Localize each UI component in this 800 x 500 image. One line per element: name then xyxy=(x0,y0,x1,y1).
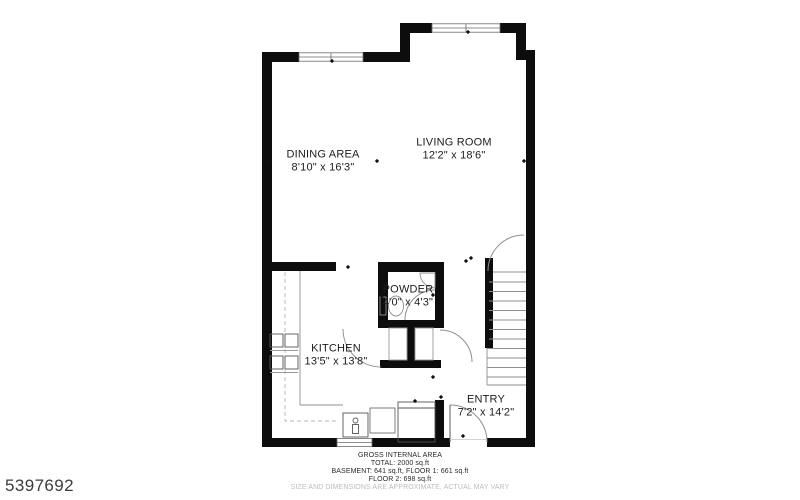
door-arc-closet-entry xyxy=(440,330,472,362)
wall-left xyxy=(262,52,272,447)
stove-icon xyxy=(270,334,298,373)
fridge-icon xyxy=(398,402,435,442)
room-dims: 7'2" x 14'2" xyxy=(458,406,515,419)
wall-right-lower xyxy=(526,52,535,447)
room-label-entry: ENTRY 7'2" x 14'2" xyxy=(458,394,515,419)
walls-layer xyxy=(262,23,535,447)
wall-closet-bottom-right xyxy=(415,360,441,368)
wall-top-left-a xyxy=(262,52,299,62)
dimension-marker xyxy=(439,395,443,399)
dimension-marker xyxy=(413,399,417,403)
wall-powder-right xyxy=(435,262,444,328)
wall-stairs-left xyxy=(485,258,493,348)
dimension-marker xyxy=(469,256,473,260)
room-dims: 4'0" x 4'3" xyxy=(383,296,434,309)
area-summary-disclaimer: SIZE AND DIMENSIONS ARE APPROXIMATE, ACT… xyxy=(230,484,570,492)
wall-bottom-c xyxy=(487,438,535,447)
area-summary: GROSS INTERNAL AREA TOTAL: 2000 sq.ft BA… xyxy=(230,452,570,492)
dimension-marker xyxy=(522,159,526,163)
window-bottom-kitchen xyxy=(337,439,372,447)
room-label-powder: POWDER 4'0" x 4'3" xyxy=(383,284,434,309)
wall-closet-divider xyxy=(407,320,415,368)
wall-entry-left xyxy=(435,400,444,443)
dimension-marker xyxy=(461,434,465,438)
room-name: ENTRY xyxy=(467,394,505,406)
closet-left xyxy=(389,328,407,360)
dimension-marker xyxy=(375,159,379,163)
closet-right xyxy=(415,328,433,360)
door-arc-stairs xyxy=(488,235,524,271)
wall-closet-bottom-left xyxy=(380,360,408,368)
room-name: KITCHEN xyxy=(311,343,361,355)
room-name: DINING AREA xyxy=(286,149,359,161)
area-summary-title: GROSS INTERNAL AREA xyxy=(230,452,570,460)
windows-layer xyxy=(299,24,500,447)
dimension-marker xyxy=(464,259,468,263)
wall-kitchen-divider xyxy=(262,262,336,271)
room-dims: 12'2" x 18'6" xyxy=(416,149,492,162)
floorplan-drawing xyxy=(0,0,800,500)
sink-icon xyxy=(343,413,368,437)
room-label-dining: DINING AREA 8'10" x 16'3" xyxy=(286,149,359,174)
dimension-marker xyxy=(431,375,435,379)
room-label-living: LIVING ROOM 12'2" x 18'6" xyxy=(416,137,492,162)
room-name: POWDER xyxy=(383,284,434,296)
wall-top-right-a xyxy=(400,23,432,33)
room-dims: 8'10" x 16'3" xyxy=(286,161,359,174)
dishwasher-icon xyxy=(370,408,395,433)
area-summary-total: TOTAL: 2000 sq.ft xyxy=(230,460,570,468)
window-top-right xyxy=(432,24,500,32)
area-summary-line2: FLOOR 2: 698 sq.ft xyxy=(230,476,570,484)
room-dims: 13'5" x 13'8" xyxy=(305,355,368,368)
dimension-marker xyxy=(346,265,350,269)
listing-id: 5397692 xyxy=(5,476,74,496)
wall-bottom-a xyxy=(262,438,337,447)
room-name: LIVING ROOM xyxy=(416,137,492,149)
floorplan-page: DINING AREA 8'10" x 16'3" LIVING ROOM 12… xyxy=(0,0,800,500)
area-summary-line1: BASEMENT: 641 sq.ft, FLOOR 1: 661 sq.ft xyxy=(230,468,570,476)
room-label-kitchen: KITCHEN 13'5" x 13'8" xyxy=(305,343,368,368)
